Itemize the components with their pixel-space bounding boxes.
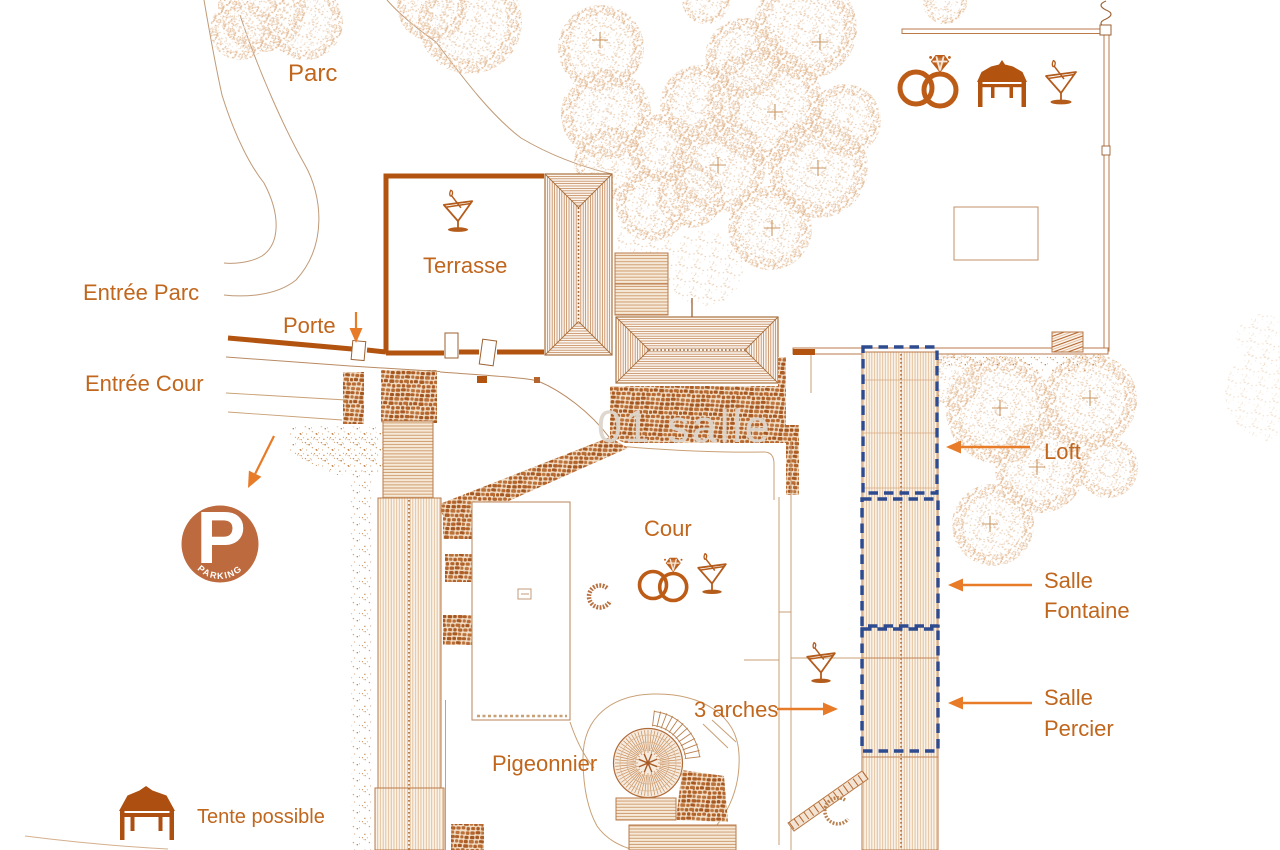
svg-text:01 salle: 01 salle xyxy=(597,401,772,452)
svg-text:Tente possible: Tente possible xyxy=(197,806,325,828)
svg-text:Salle: Salle xyxy=(1044,685,1093,710)
svg-text:Salle: Salle xyxy=(1044,568,1093,593)
svg-text:Entrée Parc: Entrée Parc xyxy=(83,280,199,305)
svg-text:Terrasse: Terrasse xyxy=(423,253,507,278)
svg-text:Percier: Percier xyxy=(1044,716,1114,741)
svg-text:Cour: Cour xyxy=(644,516,692,541)
svg-text:Entrée Cour: Entrée Cour xyxy=(85,371,204,396)
svg-text:Fontaine: Fontaine xyxy=(1044,598,1130,623)
svg-text:Porte: Porte xyxy=(283,313,336,338)
svg-text:3 arches: 3 arches xyxy=(694,697,778,722)
svg-text:Pigeonnier: Pigeonnier xyxy=(492,751,597,776)
svg-text:Loft: Loft xyxy=(1044,439,1081,464)
svg-text:Parc: Parc xyxy=(288,60,337,87)
